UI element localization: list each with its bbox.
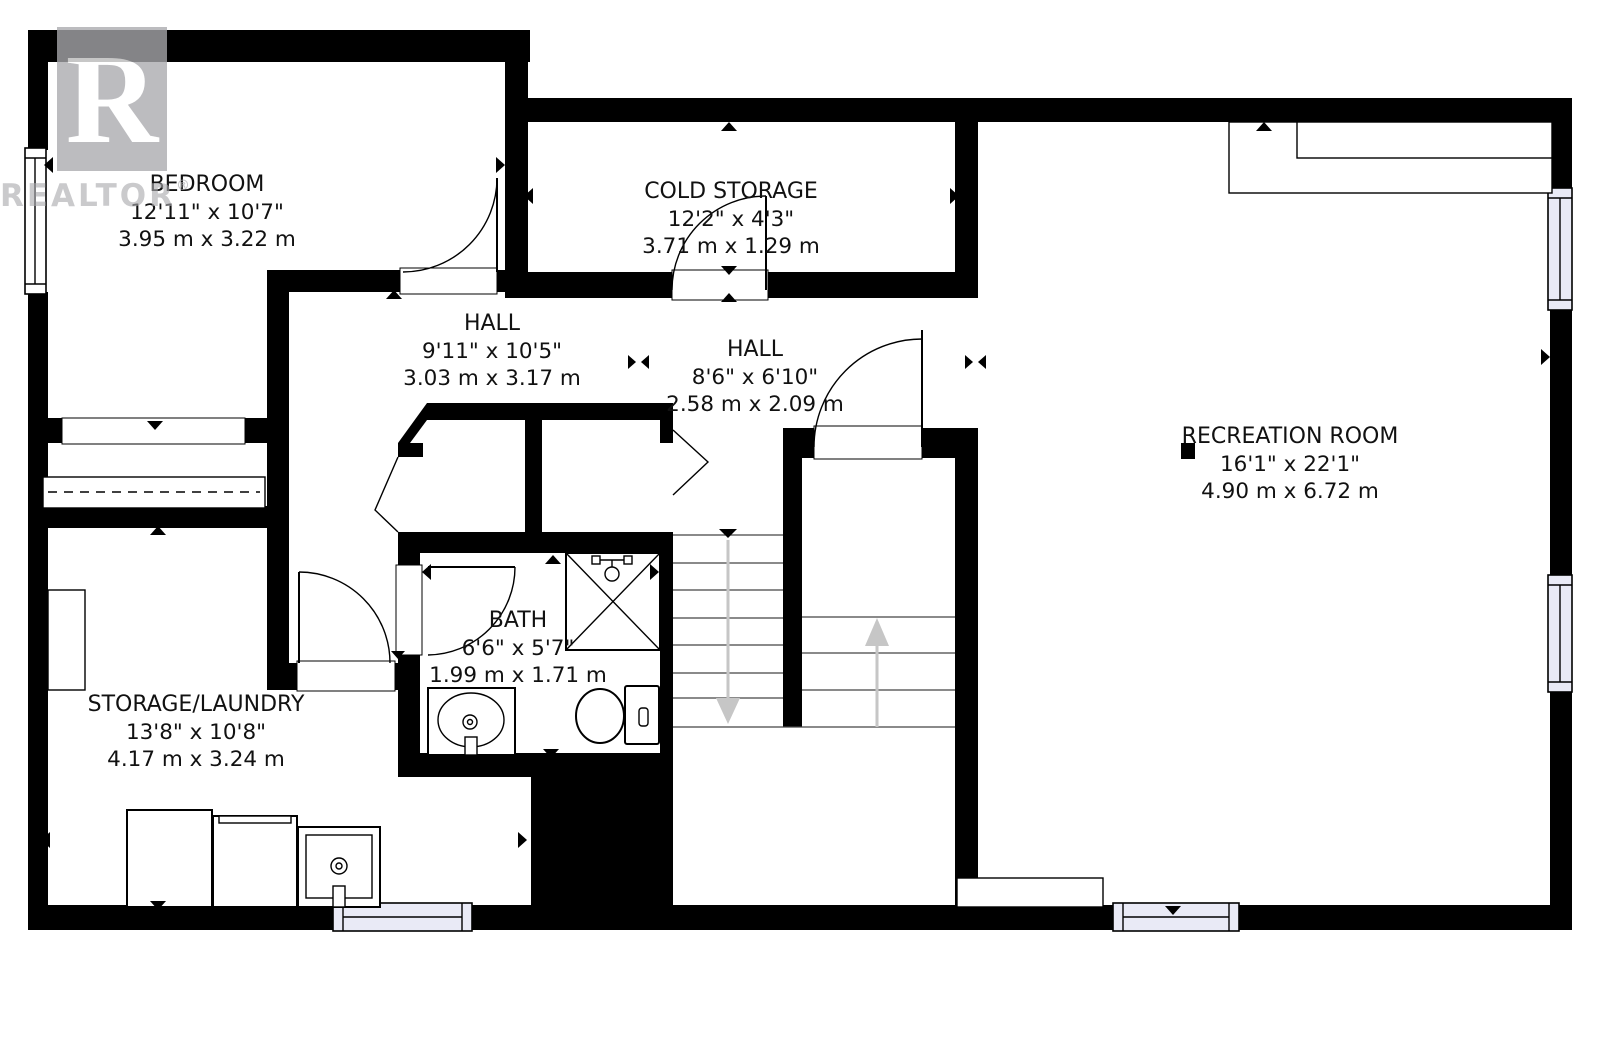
- storage-laundry-imperial: 13'8" x 10'8": [88, 719, 305, 747]
- hall1-imperial: 9'11" x 10'5": [403, 338, 581, 366]
- bath-door-opening: [396, 565, 422, 655]
- bath-metric: 1.99 m x 1.71 m: [429, 662, 607, 690]
- rec-room-counter-top: [1229, 122, 1552, 193]
- bath-imperial: 6'6" x 5'7": [429, 635, 607, 663]
- rec-room-counter-bottom: [957, 878, 1103, 907]
- dryer: [213, 816, 297, 907]
- storage-door-opening: [297, 661, 395, 691]
- recreation-metric: 4.90 m x 6.72 m: [1182, 478, 1399, 506]
- sink-vanity: [428, 688, 515, 755]
- laundry-tub: [298, 827, 380, 907]
- storage-door: [299, 572, 390, 663]
- bedroom-door: [403, 178, 497, 272]
- room-label-recreation: RECREATION ROOM 16'1" x 22'1" 4.90 m x 6…: [1182, 423, 1399, 506]
- toilet: [576, 686, 659, 744]
- hall2-name: HALL: [666, 336, 844, 364]
- storage-laundry-name: STORAGE/LAUNDRY: [88, 691, 305, 719]
- recreation-imperial: 16'1" x 22'1": [1182, 451, 1399, 479]
- recreation-name: RECREATION ROOM: [1182, 423, 1399, 451]
- hall2-metric: 2.58 m x 2.09 m: [666, 391, 844, 419]
- rec-room-window-upper: [1548, 188, 1572, 310]
- storage-shelf: [48, 590, 85, 690]
- floor-plan-drawing: [0, 0, 1600, 1037]
- realtor-watermark-word: REALTOR: [0, 178, 176, 214]
- storage-laundry-metric: 4.17 m x 3.24 m: [88, 746, 305, 774]
- stair-treads-down-flight: [673, 535, 955, 727]
- staircase: [673, 529, 955, 727]
- rec-room-window-lower: [1548, 575, 1572, 692]
- cold-storage-name: COLD STORAGE: [642, 178, 820, 206]
- closet-rod: [43, 477, 265, 508]
- stair-down-arrow: [716, 529, 740, 724]
- room-label-storage-laundry: STORAGE/LAUNDRY 13'8" x 10'8" 4.17 m x 3…: [88, 691, 305, 774]
- hall1-metric: 3.03 m x 3.17 m: [403, 365, 581, 393]
- registered-mark: ®: [176, 178, 193, 194]
- room-label-hall-2: HALL 8'6" x 6'10" 2.58 m x 2.09 m: [666, 336, 844, 419]
- stair-up-arrow: [865, 618, 889, 727]
- cold-storage-door-opening: [672, 270, 768, 300]
- hall2-imperial: 8'6" x 6'10": [666, 364, 844, 392]
- realtor-logo-icon: R: [57, 27, 167, 171]
- cold-storage-imperial: 12'2" x 4'3": [642, 206, 820, 234]
- bedroom-metric: 3.95 m x 3.22 m: [118, 226, 296, 254]
- hall1-name: HALL: [403, 310, 581, 338]
- washer: [127, 810, 212, 907]
- room-label-cold-storage: COLD STORAGE 12'2" x 4'3" 3.71 m x 1.29 …: [642, 178, 820, 261]
- room-label-bath: BATH 6'6" x 5'7" 1.99 m x 1.71 m: [429, 607, 607, 690]
- realtor-logo-letter: R: [66, 35, 158, 163]
- bedroom-window: [25, 148, 46, 294]
- bath-name: BATH: [429, 607, 607, 635]
- hall-door-opening: [814, 426, 922, 459]
- cold-storage-metric: 3.71 m x 1.29 m: [642, 233, 820, 261]
- room-label-hall-1: HALL 9'11" x 10'5" 3.03 m x 3.17 m: [403, 310, 581, 393]
- realtor-watermark-text: REALTOR®: [0, 178, 193, 214]
- floor-plan: BEDROOM 12'11" x 10'7" 3.95 m x 3.22 m C…: [0, 0, 1600, 1037]
